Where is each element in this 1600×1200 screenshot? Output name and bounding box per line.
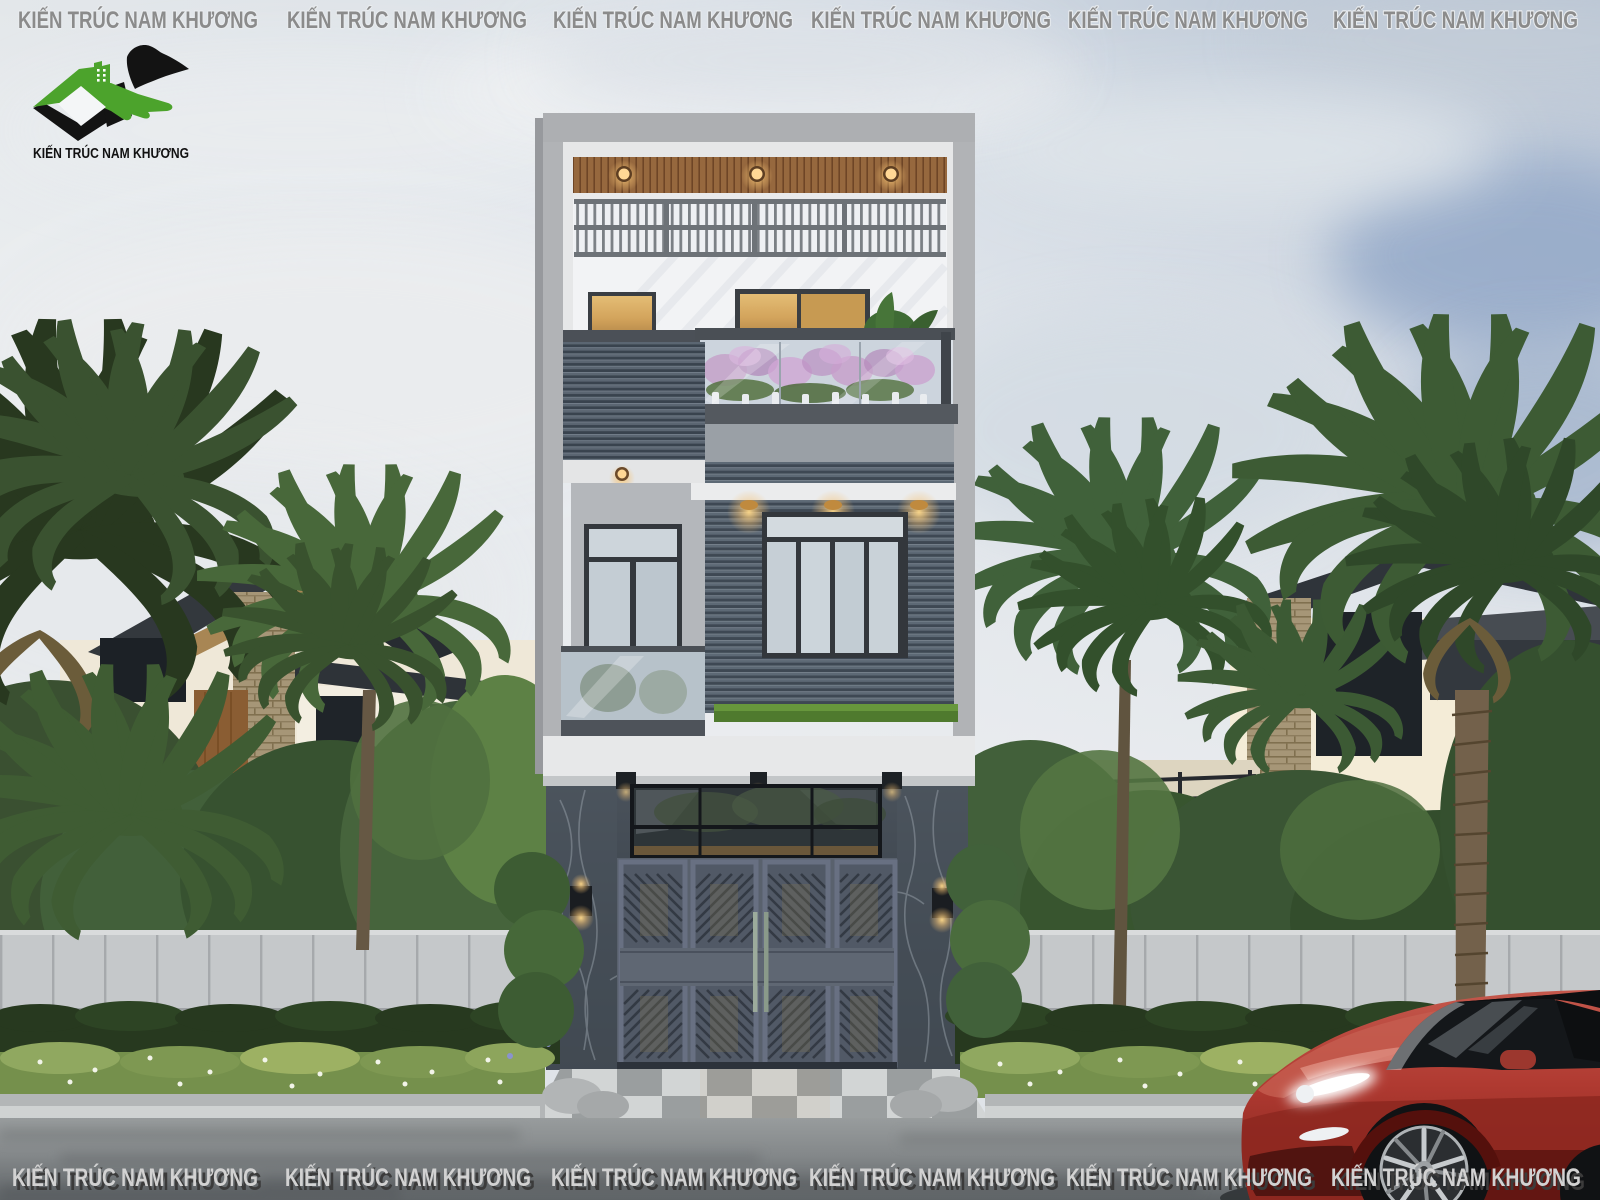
svg-text:KIẾN TRÚC NAM KHƯƠNG: KIẾN TRÚC NAM KHƯƠNG: [1333, 6, 1578, 34]
svg-text:KIẾN TRÚC NAM KHƯƠNG: KIẾN TRÚC NAM KHƯƠNG: [285, 1162, 531, 1192]
svg-text:KIẾN TRÚC NAM KHƯƠNG: KIẾN TRÚC NAM KHƯƠNG: [811, 6, 1051, 34]
svg-text:KIẾN TRÚC NAM KHƯƠNG: KIẾN TRÚC NAM KHƯƠNG: [553, 6, 793, 34]
svg-text:KIẾN TRÚC NAM KHƯƠNG: KIẾN TRÚC NAM KHƯƠNG: [18, 6, 258, 34]
svg-text:KIẾN TRÚC NAM KHƯƠNG: KIẾN TRÚC NAM KHƯƠNG: [551, 1162, 797, 1192]
svg-text:KIẾN TRÚC NAM KHƯƠNG: KIẾN TRÚC NAM KHƯƠNG: [809, 1162, 1055, 1192]
svg-text:KIẾN TRÚC NAM KHƯƠNG: KIẾN TRÚC NAM KHƯƠNG: [1331, 1162, 1581, 1192]
svg-text:KIẾN TRÚC NAM KHƯƠNG: KIẾN TRÚC NAM KHƯƠNG: [287, 6, 527, 34]
svg-text:KIẾN TRÚC NAM KHƯƠNG: KIẾN TRÚC NAM KHƯƠNG: [1068, 6, 1308, 34]
svg-text:KIẾN TRÚC NAM KHƯƠNG: KIẾN TRÚC NAM KHƯƠNG: [1066, 1162, 1312, 1192]
svg-text:KIẾN TRÚC NAM KHƯƠNG: KIẾN TRÚC NAM KHƯƠNG: [33, 144, 189, 162]
svg-text:KIẾN TRÚC NAM KHƯƠNG: KIẾN TRÚC NAM KHƯƠNG: [12, 1162, 258, 1192]
